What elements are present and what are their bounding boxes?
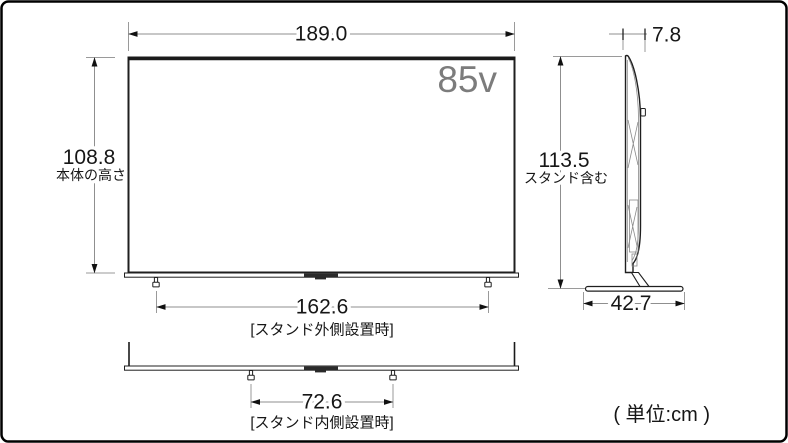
base-depth-value: 42.7 [611, 292, 652, 315]
front-width-value: 189.0 [295, 23, 348, 46]
total-height-caption: スタンド含む [524, 170, 608, 186]
total-height-value: 113.5 [539, 149, 590, 172]
dimension-panel-depth: 7.8 [609, 24, 681, 53]
stand-inner-caption: [スタンド内側設置時] [250, 415, 393, 432]
dimension-front-width: 189.0 [129, 22, 515, 51]
dimension-body-height: 108.8 本体の高さ [56, 58, 126, 274]
stand-outer-caption: [スタンド外側設置時] [250, 322, 393, 339]
screen-size-label: 85v [437, 59, 497, 100]
dimension-stand-inner: 72.6 [スタンド内側設置時] [250, 384, 393, 432]
diagram-svg: 85v 189.0 108.8 本体の高さ 162.6 [スタンド外側設置時] [0, 0, 788, 443]
front-view: 85v [125, 58, 519, 287]
bottom-partial-view [125, 342, 519, 380]
bottom-view-center-notch [315, 370, 326, 372]
tv-dimensions-diagram: 85v 189.0 108.8 本体の高さ 162.6 [スタンド外側設置時] [0, 0, 788, 443]
tv-front-center-sensor [304, 274, 338, 277]
tv-foot-right-inner [390, 371, 396, 380]
unit-note: ( 単位:cm ) [613, 403, 710, 426]
panel-depth-value: 7.8 [652, 24, 681, 47]
tv-foot-right-outer [485, 278, 491, 287]
stand-inner-width-value: 72.6 [302, 391, 343, 414]
stand-outer-width-value: 162.6 [296, 296, 349, 319]
bottom-view-center-sensor [304, 367, 338, 370]
stand-neck [632, 273, 650, 287]
stand-base-plate [586, 287, 684, 292]
tv-front-center-notch [315, 277, 326, 279]
dimension-stand-outer: 162.6 [スタンド外側設置時] [157, 291, 489, 339]
tv-foot-left-outer [153, 278, 159, 287]
side-profile-knob [641, 109, 646, 117]
tv-foot-left-inner [248, 371, 254, 380]
dimension-total-height: 113.5 スタンド含む [524, 57, 622, 289]
body-height-caption: 本体の高さ [56, 167, 126, 183]
body-height-value: 108.8 [63, 146, 116, 169]
dimension-base-depth: 42.7 [584, 292, 685, 315]
